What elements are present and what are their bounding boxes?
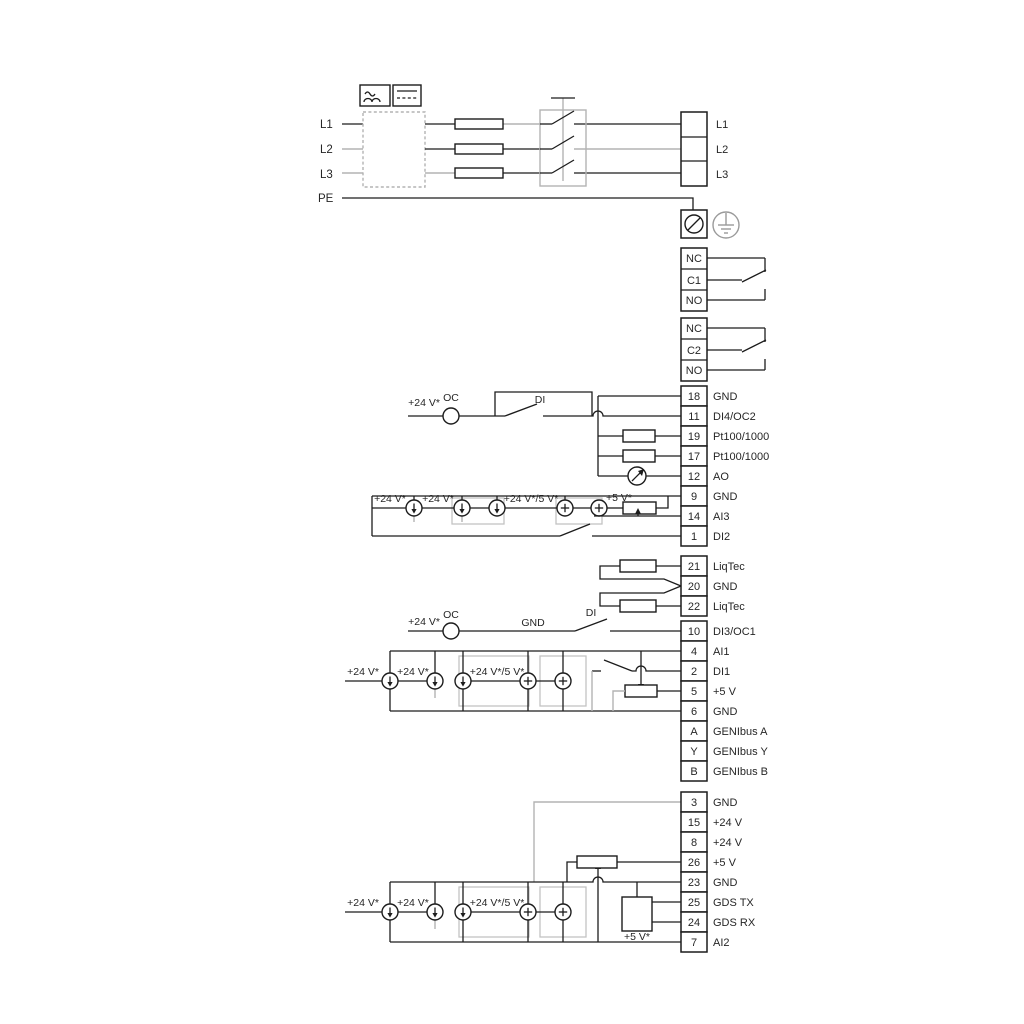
- gnd-label: GND: [521, 617, 545, 629]
- resistor-icon: [623, 430, 655, 442]
- voltage-source-icon: [557, 500, 573, 516]
- svg-text:B: B: [690, 766, 697, 778]
- svg-text:6: 6: [691, 706, 697, 718]
- svg-text:12: 12: [688, 471, 700, 483]
- oc-label: OC: [443, 392, 459, 404]
- mains-input-section: L1 L2 L3 PE: [318, 85, 739, 238]
- terminal-row-14: 14AI3: [681, 506, 730, 526]
- relay-2-contact-icon: [707, 328, 766, 370]
- svg-text:23: 23: [688, 877, 700, 889]
- terminal-row-10: 10DI3/OC1: [681, 621, 756, 641]
- relay-1-block: NC C1 NO: [681, 248, 766, 311]
- svg-text:GND: GND: [713, 797, 738, 809]
- terminal-row-15: 15+24 V: [681, 812, 743, 832]
- svg-text:GND: GND: [713, 706, 738, 718]
- svg-text:17: 17: [688, 451, 700, 463]
- current-source-icon: [382, 673, 398, 689]
- terminal-row-19: 19Pt100/1000: [681, 426, 769, 446]
- svg-text:Pt100/1000: Pt100/1000: [713, 431, 769, 443]
- svg-text:AO: AO: [713, 471, 729, 483]
- svg-text:20: 20: [688, 581, 700, 593]
- svg-text:LiqTec: LiqTec: [713, 561, 745, 573]
- gauge-icon: [628, 467, 646, 485]
- resistor-icon: [623, 450, 655, 462]
- v24-label: +24 V*: [422, 493, 454, 505]
- svg-text:+24 V: +24 V: [713, 817, 743, 829]
- terminal-label: L3: [716, 169, 728, 181]
- io-terminal-block-3: 3GND 15+24 V 8+24 V 26+5 V 23GND 25GDS T…: [681, 792, 756, 952]
- svg-text:7: 7: [691, 937, 697, 949]
- svg-text:11: 11: [688, 411, 699, 423]
- terminal-label: L1: [716, 119, 728, 131]
- mains-terminal-block: L1 L2 L3: [681, 112, 728, 186]
- fuse-icon: [455, 144, 503, 154]
- io2-wiring: +24 V* OC GND DI: [345, 607, 681, 711]
- oc-circle-icon: [443, 623, 459, 639]
- terminal-label: NO: [686, 365, 703, 377]
- relay-1-contact-icon: [707, 258, 766, 300]
- svg-text:+24 V: +24 V: [713, 837, 743, 849]
- io3-wiring: +24 V* +24 V* +24 V*/5 V* +5 V*: [345, 802, 681, 943]
- v24-label: +24 V*: [397, 666, 429, 678]
- v24-label: +24 V*: [374, 493, 406, 505]
- svg-text:GENIbus B: GENIbus B: [713, 766, 768, 778]
- terminal-row-1: 1DI2: [681, 526, 730, 546]
- potentiometer-icon: [567, 856, 681, 882]
- svg-text:9: 9: [691, 491, 697, 503]
- mains-label-l3: L3: [320, 169, 333, 181]
- svg-text:GDS TX: GDS TX: [713, 897, 754, 909]
- voltage-source-icon: [555, 673, 571, 689]
- terminal-row-21: 21LiqTec: [681, 556, 745, 576]
- svg-text:Y: Y: [690, 746, 698, 758]
- terminal-label: C1: [687, 275, 701, 287]
- svg-text:GND: GND: [713, 391, 738, 403]
- svg-text:GND: GND: [713, 581, 738, 593]
- terminal-row-A: AGENIbus A: [681, 721, 768, 741]
- svg-text:DI1: DI1: [713, 666, 730, 678]
- svg-text:A: A: [690, 726, 698, 738]
- v24-5v-label: +24 V*/5 V*: [504, 493, 559, 505]
- svg-text:AI2: AI2: [713, 937, 730, 949]
- v24-label: +24 V*: [347, 666, 379, 678]
- terminal-row-7: 7AI2: [681, 932, 730, 952]
- di-label: DI: [535, 394, 546, 406]
- terminal-row-9: 9GND: [681, 486, 738, 506]
- di-switch-icon: [575, 619, 607, 631]
- current-source-icon: [427, 904, 443, 920]
- v24-5v-label: +24 V*/5 V*: [470, 897, 525, 909]
- di2-switch-icon: [560, 524, 590, 536]
- svg-text:15: 15: [688, 817, 700, 829]
- svg-text:DI3/OC1: DI3/OC1: [713, 626, 756, 638]
- gds-sensor-box: +5 V*: [622, 882, 681, 943]
- di-label: DI: [586, 607, 597, 619]
- terminal-row-11: 11DI4/OC2: [681, 406, 756, 426]
- oc-label: OC: [443, 609, 459, 621]
- current-source-icon: [406, 500, 422, 516]
- terminal-row-5: 5+5 V: [681, 681, 737, 701]
- current-source-icon: [427, 673, 443, 689]
- terminal-row-25: 25GDS TX: [681, 892, 754, 912]
- svg-text:5: 5: [691, 686, 697, 698]
- fuse-icon: [455, 119, 503, 129]
- terminal-label: L2: [716, 144, 728, 156]
- terminal-row-17: 17Pt100/1000: [681, 446, 769, 466]
- fuse-icon: [455, 168, 503, 178]
- mains-label-l2: L2: [320, 144, 333, 156]
- terminal-row-12: 12AO: [681, 466, 729, 486]
- terminal-row-23: 23GND: [681, 872, 738, 892]
- ac-symbol-icon: [360, 85, 390, 106]
- ai3-options: +24 V* +24 V* +24 V*/5 V* +5 V*: [372, 492, 681, 536]
- oc-circle-icon: [443, 408, 459, 424]
- svg-text:19: 19: [688, 431, 700, 443]
- svg-text:GDS RX: GDS RX: [713, 917, 756, 929]
- mains-label-pe: PE: [318, 193, 334, 205]
- relay-2-block: NC C2 NO: [681, 318, 766, 381]
- terminal-row-Y: YGENIbus Y: [681, 741, 768, 761]
- pe-wire: [342, 198, 693, 210]
- svg-text:+5 V: +5 V: [713, 857, 737, 869]
- svg-text:Pt100/1000: Pt100/1000: [713, 451, 769, 463]
- svg-text:3: 3: [691, 797, 697, 809]
- svg-text:26: 26: [688, 857, 700, 869]
- current-source-icon: [455, 904, 471, 920]
- current-source-icon: [454, 500, 470, 516]
- rcd-box: [360, 85, 425, 187]
- liqtec-terminal-block: 21LiqTec 20GND 22LiqTec: [681, 556, 745, 616]
- dc-symbol-icon: [393, 85, 421, 106]
- svg-text:24: 24: [688, 917, 700, 929]
- liqtec-wiring: [600, 560, 681, 612]
- voltage-source-icon: [591, 500, 607, 516]
- svg-text:18: 18: [688, 391, 700, 403]
- terminal-row-3: 3GND: [681, 792, 738, 812]
- terminal-label: NC: [686, 253, 702, 265]
- svg-text:10: 10: [688, 626, 700, 638]
- di-switch-icon: [505, 404, 537, 416]
- svg-text:LiqTec: LiqTec: [713, 601, 745, 613]
- current-source-icon: [382, 904, 398, 920]
- ai1-options: +24 V* +24 V* +24 V*/5 V*: [345, 651, 681, 711]
- io1-wiring: +24 V* OC DI: [372, 392, 681, 536]
- terminal-row-24: 24GDS RX: [681, 912, 756, 932]
- svg-text:AI1: AI1: [713, 646, 730, 658]
- terminal-row-26: 26+5 V: [681, 852, 737, 872]
- svg-text:25: 25: [688, 897, 700, 909]
- svg-text:4: 4: [691, 646, 697, 658]
- svg-text:DI2: DI2: [713, 531, 730, 543]
- svg-text:GENIbus A: GENIbus A: [713, 726, 768, 738]
- resistor-icon: [620, 600, 656, 612]
- svg-text:1: 1: [691, 531, 697, 543]
- svg-text:22: 22: [688, 601, 700, 613]
- terminal-row-8: 8+24 V: [681, 832, 743, 852]
- wiring-diagram: L1 L2 L3 PE: [0, 0, 1024, 1024]
- terminal-label: NC: [686, 323, 702, 335]
- svg-text:GND: GND: [713, 491, 738, 503]
- resistor-icon: [620, 560, 656, 572]
- terminal-row-6: 6GND: [681, 701, 738, 721]
- mains-label-l1: L1: [320, 119, 333, 131]
- di1-switch-icon: [604, 660, 632, 671]
- terminal-label: NO: [686, 295, 703, 307]
- terminal-row-22: 22LiqTec: [681, 596, 745, 616]
- voltage-source-icon: [555, 904, 571, 920]
- potentiometer-icon: [613, 685, 681, 711]
- svg-text:2: 2: [691, 666, 697, 678]
- svg-text:GND: GND: [713, 877, 738, 889]
- terminal-row-18: 18GND: [681, 386, 738, 406]
- svg-text:8: 8: [691, 837, 697, 849]
- svg-text:+5 V: +5 V: [713, 686, 737, 698]
- ai2-options: +24 V* +24 V* +24 V*/5 V*: [345, 882, 586, 942]
- earth-icon: [713, 212, 739, 238]
- v24-label: +24 V*: [347, 897, 379, 909]
- terminal-row-2: 2DI1: [681, 661, 730, 681]
- svg-text:21: 21: [688, 561, 700, 573]
- svg-text:GENIbus Y: GENIbus Y: [713, 746, 768, 758]
- current-source-icon: [455, 673, 471, 689]
- pe-terminal-icon: [681, 210, 707, 238]
- svg-text:DI4/OC2: DI4/OC2: [713, 411, 756, 423]
- io-terminal-block-2: 10DI3/OC1 4AI1 2DI1 5+5 V 6GND AGENIbus …: [681, 621, 768, 781]
- svg-text:AI3: AI3: [713, 511, 730, 523]
- v5-label: +5 V*: [624, 931, 650, 943]
- current-source-icon: [489, 500, 505, 516]
- io-terminal-block-1: 18GND 11DI4/OC2 19Pt100/1000 17Pt100/100…: [681, 386, 769, 546]
- v24-label: +24 V*: [408, 397, 440, 409]
- v24-5v-label: +24 V*/5 V*: [470, 666, 525, 678]
- v24-label: +24 V*: [397, 897, 429, 909]
- terminal-row-B: BGENIbus B: [681, 761, 768, 781]
- terminal-label: C2: [687, 345, 701, 357]
- svg-text:14: 14: [688, 511, 700, 523]
- v24-label: +24 V*: [408, 616, 440, 628]
- terminal-row-20: 20GND: [681, 576, 738, 596]
- terminal-row-4: 4AI1: [681, 641, 730, 661]
